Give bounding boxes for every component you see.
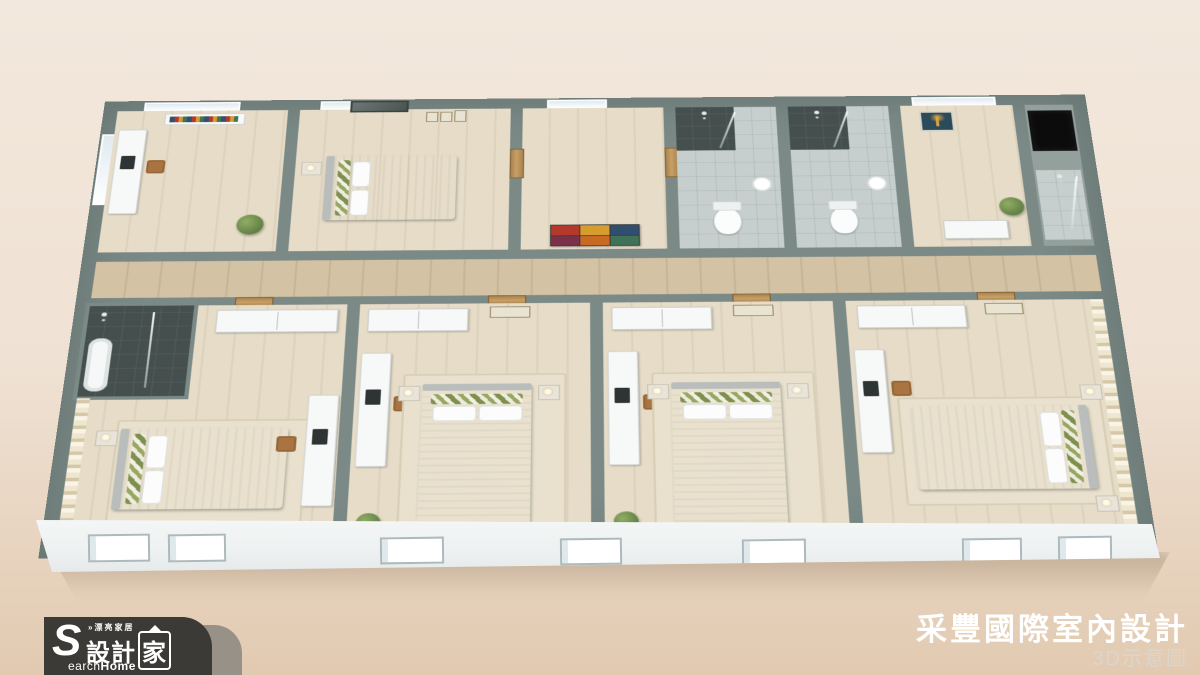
desk: [355, 353, 392, 467]
painting-cell: [581, 235, 610, 245]
wardrobe: [215, 309, 339, 332]
bed: [416, 383, 531, 531]
room-entry-foyer: [521, 107, 668, 249]
facade-window: [380, 537, 444, 565]
lamp: [1084, 387, 1096, 396]
laptop: [365, 389, 381, 404]
company-name: 采豐國際室內設計: [916, 613, 1188, 647]
room-bedroom-4: [845, 299, 1140, 540]
floorplan-scene: [105, 98, 1085, 663]
headboard: [322, 156, 335, 220]
stage: »漂亮家居 S 設計家 earchHome 采豐國際室內設計 3D示意圖: [0, 0, 1200, 675]
pillow: [729, 404, 774, 420]
bed: [111, 428, 289, 510]
logo-s-glyph: S: [52, 619, 81, 663]
pillow: [349, 190, 369, 216]
striped-bolster: [431, 394, 523, 405]
shower-glass: [833, 111, 848, 147]
shower-head: [702, 111, 707, 115]
shower-glass: [1071, 176, 1078, 228]
painting-cell: [551, 236, 580, 246]
room-bedroom-1: [56, 304, 347, 545]
room-bedroom-3: [603, 301, 851, 542]
shower-stall: [788, 106, 850, 150]
facade-window: [1058, 536, 1112, 563]
laptop: [863, 381, 880, 396]
room-master-bedroom: [288, 109, 511, 252]
lamp: [1100, 498, 1113, 507]
potted-plant: [235, 215, 264, 235]
wardrobe: [367, 308, 469, 331]
desk: [854, 349, 894, 453]
utility-core: [1024, 105, 1094, 246]
shower-head: [1057, 174, 1063, 178]
render-caption: 3D示意圖: [916, 647, 1188, 671]
bed: [911, 405, 1099, 490]
sink: [751, 176, 772, 191]
dark-shower-room: [77, 305, 194, 396]
pillow: [141, 470, 165, 504]
shower-glass: [144, 312, 155, 388]
logo-brand-boxed: 家: [138, 631, 171, 670]
study-chair: [146, 160, 166, 173]
wall-art: [490, 306, 531, 318]
pillow: [432, 406, 476, 422]
room-bathroom-1: [675, 107, 784, 249]
wall-art: [984, 303, 1024, 315]
shower-head: [101, 312, 107, 316]
pillow: [145, 435, 169, 468]
room-bedroom-top-right: [900, 105, 1032, 247]
headboard: [671, 382, 780, 389]
toilet-tank: [712, 201, 741, 210]
hallway: [91, 255, 1101, 298]
pillow: [478, 405, 522, 421]
logo-en-rest: earch: [68, 659, 101, 673]
toilet: [830, 207, 859, 233]
picture-frame: [426, 112, 439, 122]
laptop: [614, 388, 630, 403]
picture-frame: [454, 110, 466, 122]
master-bed: [322, 155, 457, 220]
floorplan: [38, 95, 1158, 559]
potted-plant: [998, 197, 1025, 215]
shower-glass: [719, 112, 735, 148]
study-desk: [107, 130, 147, 214]
toilet-tank: [828, 201, 858, 210]
shower-room: [1036, 170, 1092, 240]
dresser: [943, 220, 1010, 239]
lamp: [542, 387, 553, 396]
laptop: [312, 429, 329, 445]
laptop: [120, 156, 136, 169]
shower-head: [814, 111, 819, 115]
facade-window: [88, 534, 150, 563]
tree-painting: [919, 111, 956, 131]
wall-art: [733, 305, 774, 317]
striped-bolster: [335, 160, 351, 215]
pillow: [351, 162, 371, 187]
wall-tv: [350, 101, 409, 113]
pillow: [1044, 448, 1069, 483]
striped-bolster: [680, 392, 772, 403]
facade-window: [560, 538, 622, 566]
shower-stall: [675, 107, 735, 151]
desk: [300, 395, 339, 507]
credit-block: 采豐國際室內設計 3D示意圖: [916, 613, 1188, 671]
logo-brand-en: earchHome: [68, 659, 136, 673]
pillow: [683, 404, 728, 420]
wardrobe: [856, 305, 967, 328]
foyer-door: [509, 149, 524, 179]
painting-cell: [610, 235, 639, 245]
painting-cell: [610, 225, 639, 235]
room-bedroom-2: [345, 303, 591, 544]
facade-window: [742, 539, 806, 566]
searchhome-logo: »漂亮家居 S 設計家 earchHome: [44, 617, 212, 675]
bed: [671, 382, 789, 530]
bookshelf: [164, 113, 246, 125]
facade-window: [168, 534, 226, 563]
logo-en-bold: Home: [101, 659, 136, 673]
room-bathroom-2: [788, 106, 902, 248]
desk: [608, 351, 640, 465]
wardrobe: [611, 307, 712, 330]
painting-cell: [551, 225, 579, 235]
lamp: [791, 386, 802, 394]
books: [169, 116, 238, 122]
chair: [891, 381, 912, 396]
pillow: [1039, 412, 1064, 447]
elevator-shaft: [1027, 110, 1077, 151]
lamp: [652, 387, 663, 396]
sink: [866, 176, 888, 191]
chair: [276, 436, 297, 452]
bathtub: [82, 338, 113, 391]
painting-cell: [581, 225, 610, 235]
room-study: [98, 110, 289, 252]
headboard: [422, 383, 531, 390]
toilet: [714, 208, 742, 234]
picture-frame: [440, 112, 452, 122]
abstract-painting: [550, 224, 640, 246]
